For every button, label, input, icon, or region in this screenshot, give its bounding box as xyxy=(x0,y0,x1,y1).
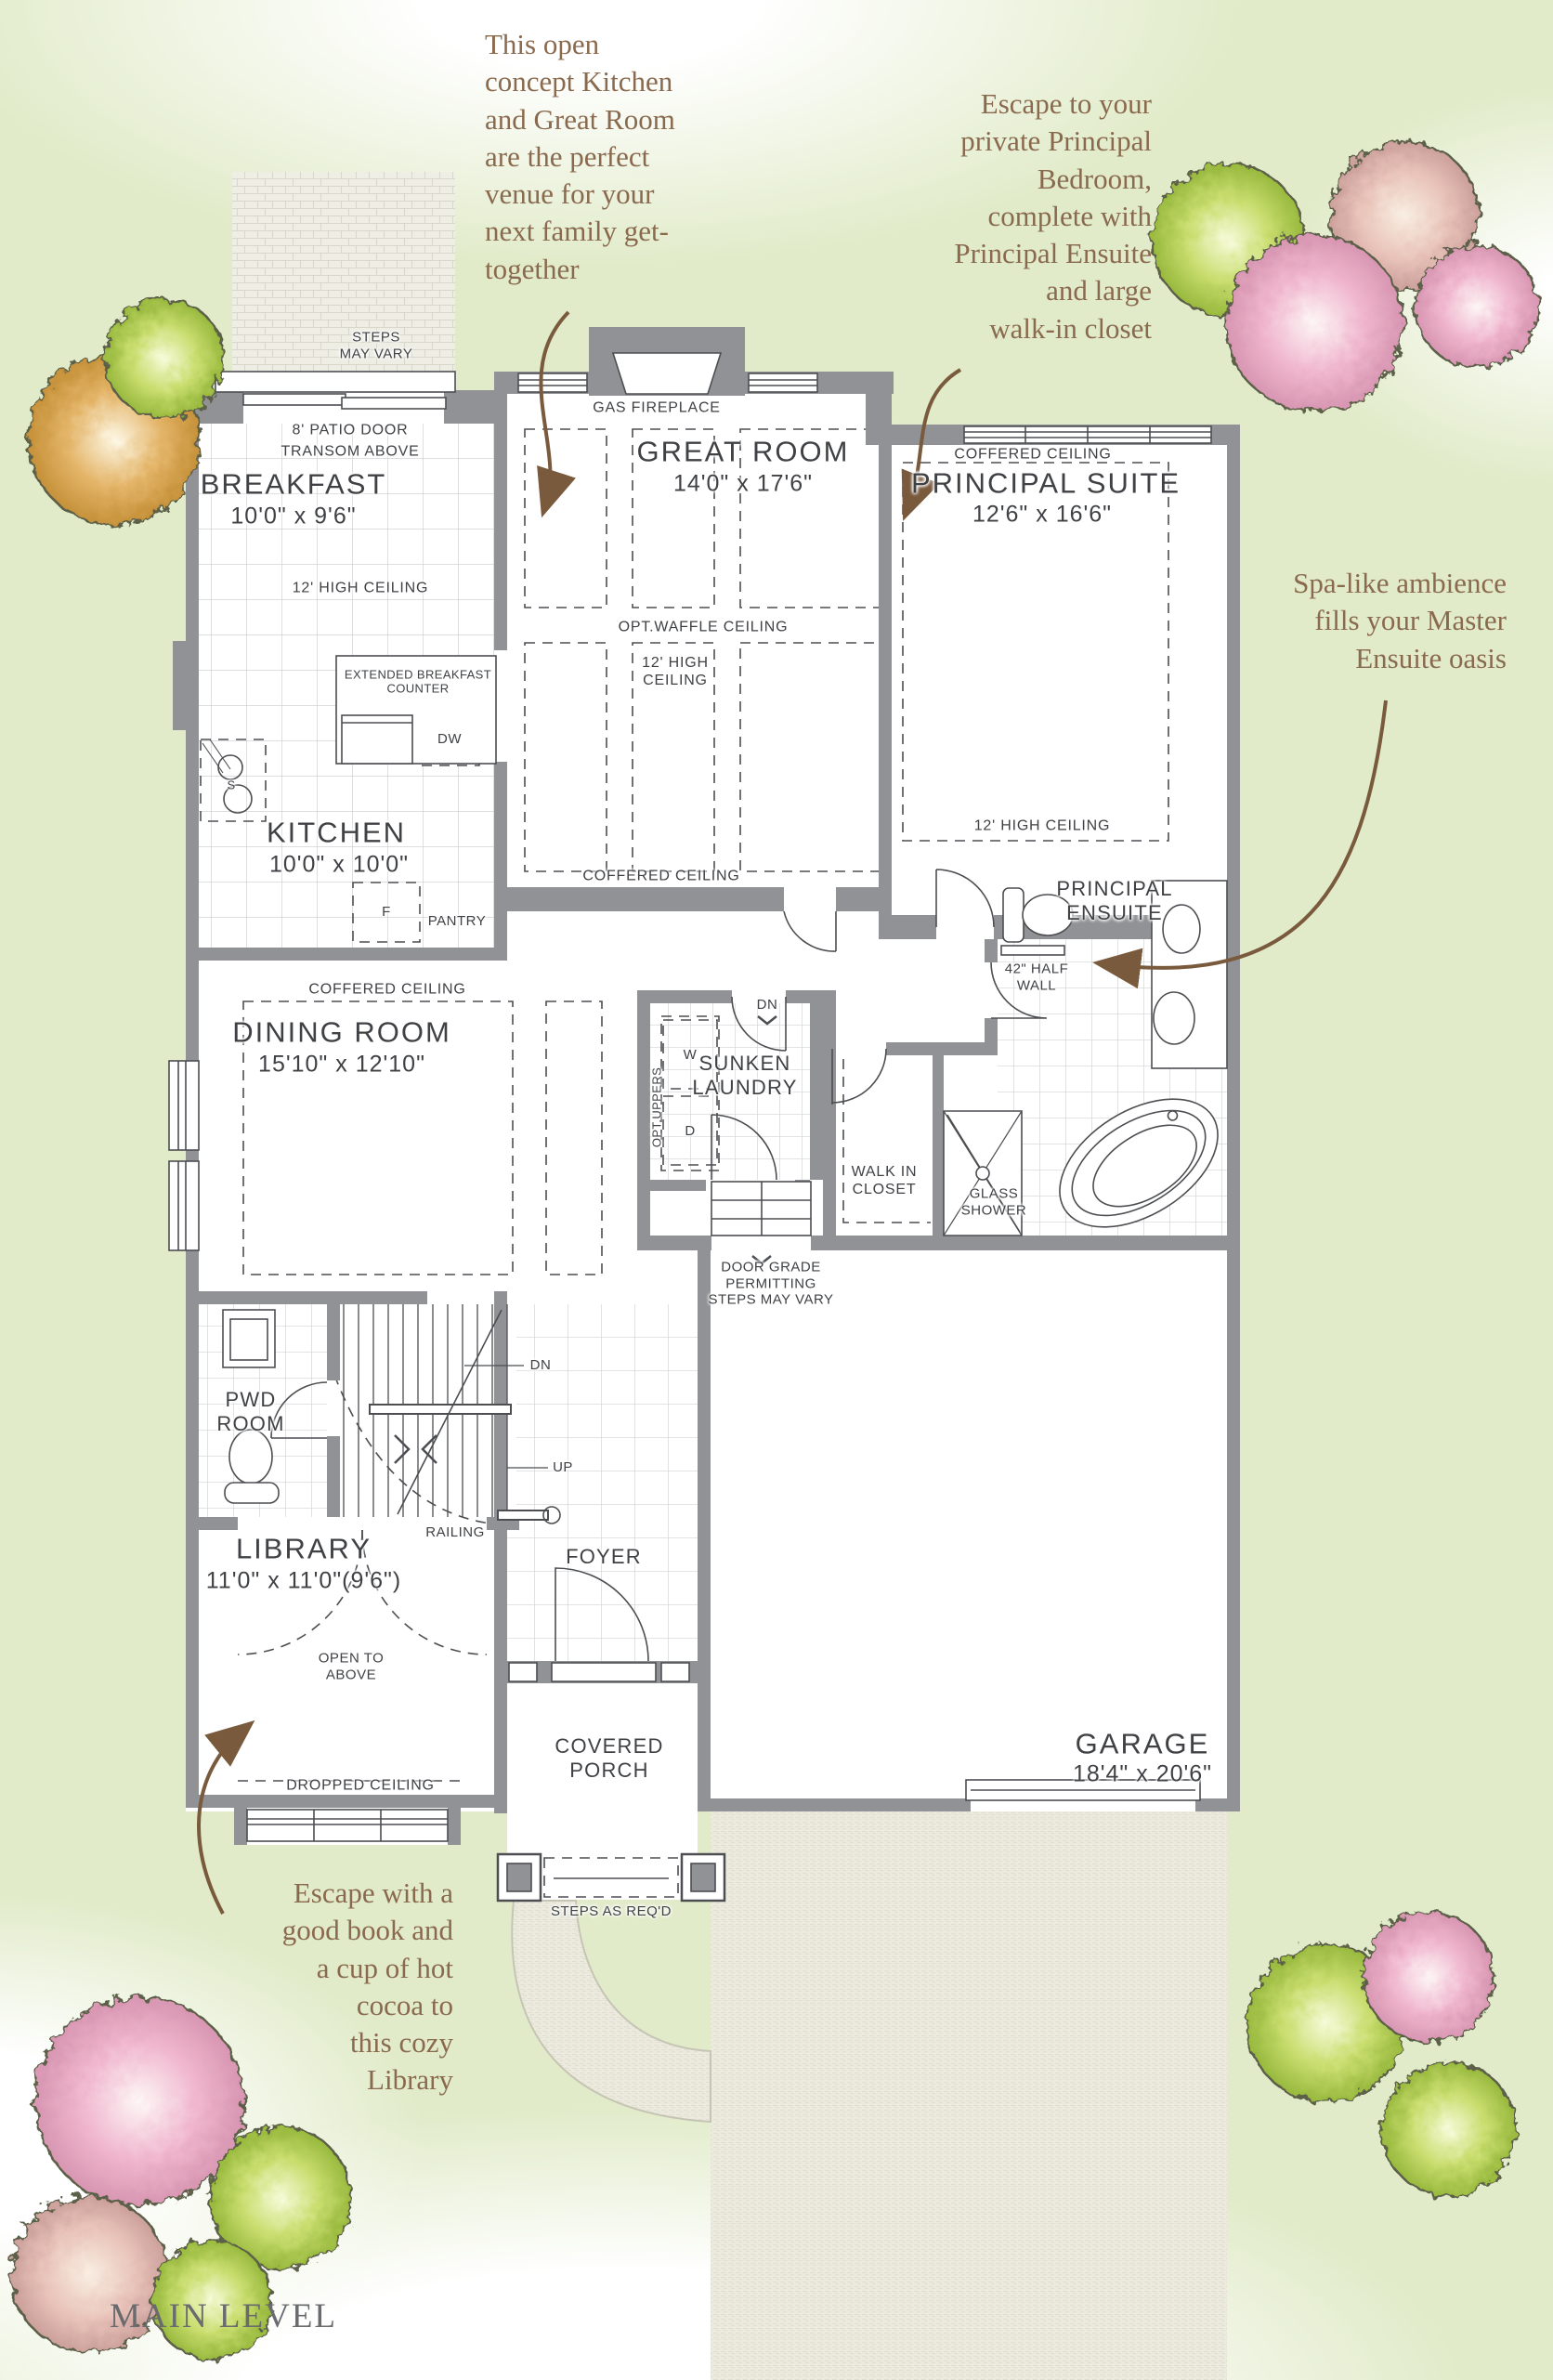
steps-reqd-label: STEPS AS REQ'D xyxy=(551,1903,672,1920)
tree-top-left-green xyxy=(105,299,224,418)
great-room-coffered-label: COFFERED CEILING xyxy=(582,869,739,886)
dryer-label: D xyxy=(685,1123,695,1140)
breakfast-name: BREAKFAST xyxy=(201,468,387,503)
waffle-ceiling-label: OPT.WAFFLE CEILING xyxy=(619,620,789,637)
suite-ceiling-label: 12' HIGH CEILING xyxy=(974,818,1111,836)
open-to-above-label: OPEN TO ABOVE xyxy=(319,1650,384,1682)
pantry-label: PANTRY xyxy=(428,913,486,930)
patio-door-label: 8' PATIO DOOR xyxy=(293,423,409,440)
transom-label: TRANSOM ABOVE xyxy=(281,444,419,462)
ensuite-name: PRINCIPAL ENSUITE xyxy=(1056,877,1172,925)
opt-uppers-label: OPT.UPPERS xyxy=(649,1067,663,1147)
door-grade-label: DOOR GRADE PERMITTING STEPS MAY VARY xyxy=(708,1259,833,1308)
sink-label: S xyxy=(227,778,235,791)
breakfast-counter-label: EXTENDED BREAKFAST COUNTER xyxy=(345,668,491,697)
great-room-name: GREAT ROOM xyxy=(637,436,850,470)
stairs-dn-label: DN xyxy=(530,1357,552,1374)
garage-name: GARAGE xyxy=(1076,1728,1210,1762)
breakfast-dims: 10'0" x 9'6" xyxy=(230,503,356,530)
laundry-name: SUNKEN LAUNDRY xyxy=(692,1052,797,1100)
foyer-name: FOYER xyxy=(566,1545,642,1569)
front-walkway xyxy=(512,1901,711,2122)
laundry-dn-label: DN xyxy=(757,997,778,1013)
great-room-dims: 14'0" x 17'6" xyxy=(673,470,813,498)
tree-top-right-pink xyxy=(1226,235,1403,412)
railing-label: RAILING xyxy=(425,1524,485,1541)
tree-right-pink xyxy=(1364,1912,1494,2042)
floor-plan-page: STEPS MAY VARY 8' PATIO DOOR TRANSOM ABO… xyxy=(0,0,1553,2380)
dining-name: DINING ROOM xyxy=(232,1016,451,1051)
library-dims: 11'0" x 11'0"(9'6") xyxy=(206,1567,402,1595)
principal-suite-dims: 12'6" x 16'6" xyxy=(972,501,1112,529)
library-annotation: Escape with a good book and a cup of hot… xyxy=(204,1875,453,2099)
stairs-up-label: UP xyxy=(553,1459,573,1476)
half-wall-label: 42" HALF WALL xyxy=(1005,961,1069,993)
principal-annotation: Escape to your private Principal Bedroom… xyxy=(864,85,1152,347)
walk-in-closet-label: WALK IN CLOSET xyxy=(852,1164,918,1199)
library-name: LIBRARY xyxy=(236,1533,372,1567)
glass-shower-label: GLASS SHOWER xyxy=(961,1185,1027,1218)
patio-steps-label: STEPS MAY VARY xyxy=(340,329,413,361)
principal-suite-name: PRINCIPAL SUITE xyxy=(911,467,1181,502)
kitchen-annotation: This open concept Kitchen and Great Room… xyxy=(485,26,791,288)
great-room-ceiling-label: 12' HIGH CEILING xyxy=(642,655,709,690)
dining-dims: 15'10" x 12'10" xyxy=(258,1051,425,1079)
suite-coffered-label: COFFERED CEILING xyxy=(954,447,1111,464)
ensuite-annotation: Spa-like ambience fills your Master Ensu… xyxy=(1235,565,1507,677)
garage-dims: 18'4" x 20'6" xyxy=(1073,1760,1212,1788)
breakfast-ceiling-label: 12' HIGH CEILING xyxy=(293,581,429,598)
tree-top-right-pink2 xyxy=(1416,245,1538,368)
tree-right-green2 xyxy=(1382,2062,1516,2196)
fridge-label: F xyxy=(382,904,391,921)
covered-porch-name: COVERED PORCH xyxy=(555,1734,663,1783)
main-level-title: MAIN LEVEL xyxy=(110,2296,337,2336)
dining-coffered-label: COFFERED CEILING xyxy=(308,982,465,1000)
kitchen-dims: 10'0" x 10'0" xyxy=(269,851,409,879)
dropped-ceiling-label: DROPPED CEILING xyxy=(286,1778,435,1796)
gas-fireplace-label: GAS FIREPLACE xyxy=(593,400,721,418)
kitchen-name: KITCHEN xyxy=(267,817,406,851)
dishwasher-label: DW xyxy=(437,731,462,748)
pwd-room-name: PWD ROOM xyxy=(216,1388,284,1436)
